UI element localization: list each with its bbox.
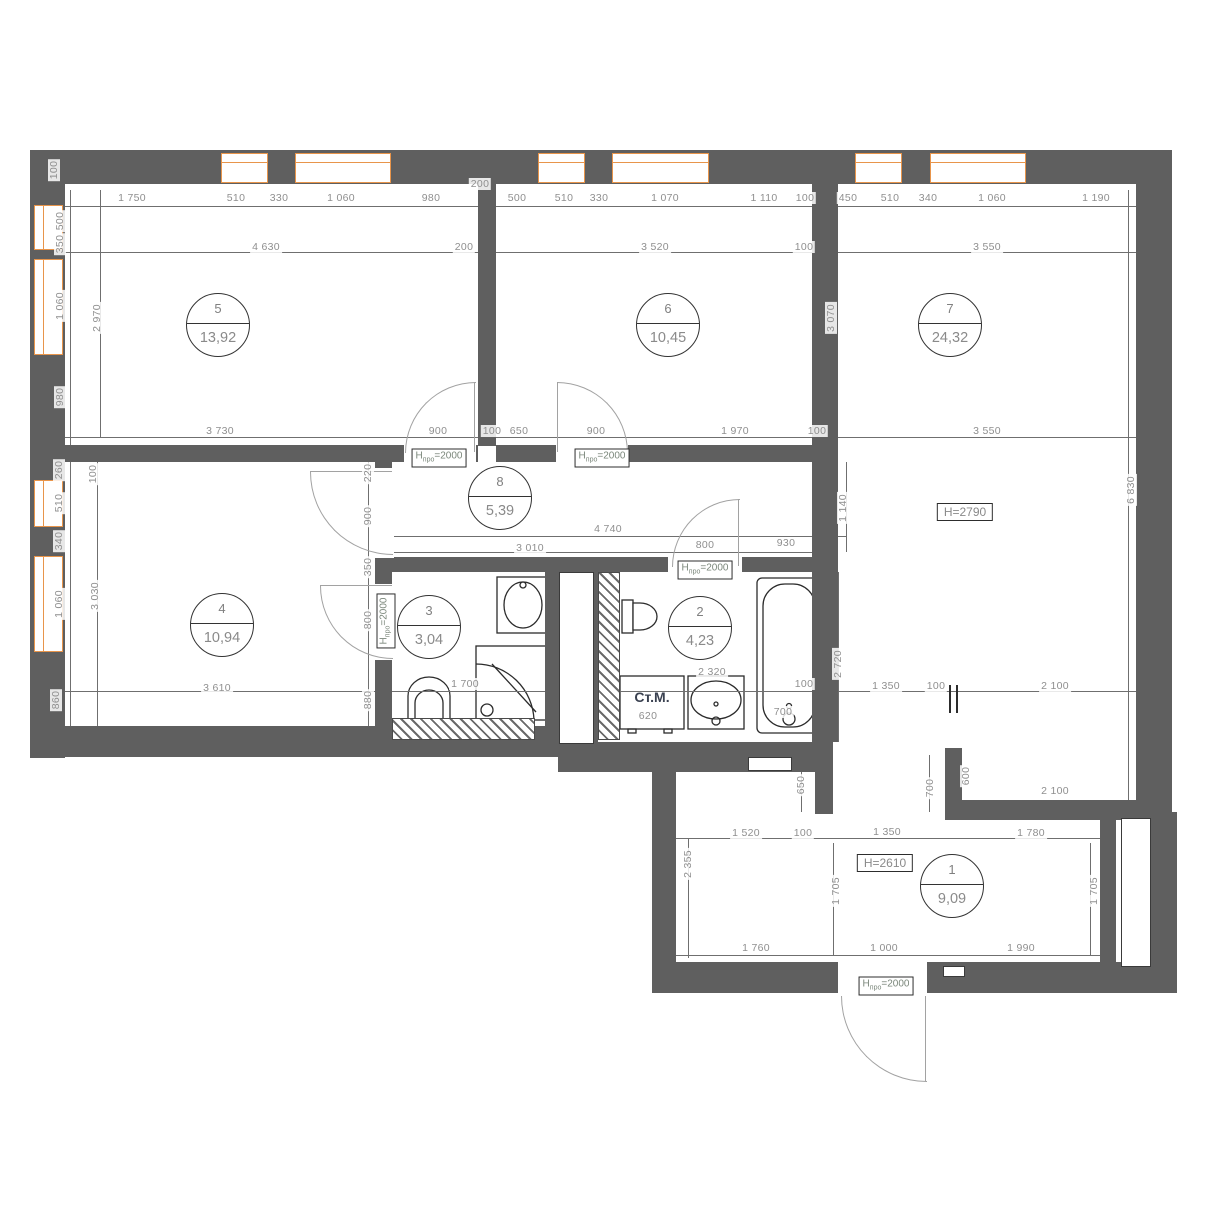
dimension-label: 450 xyxy=(837,192,859,204)
dimension-label: 3 610 xyxy=(201,682,233,694)
door-leaf xyxy=(738,499,739,566)
door-leaf xyxy=(310,471,392,472)
bathroom3-toilet xyxy=(408,677,450,722)
room-tag: 610,45 xyxy=(636,293,700,357)
dimension-label: 900 xyxy=(585,425,607,437)
door-height-box: Hпро=2000 xyxy=(575,449,630,468)
wall xyxy=(815,758,833,814)
dimension-label: 1 060 xyxy=(325,192,357,204)
dimension-label: 1 705 xyxy=(830,875,842,907)
dimension-label: 510 xyxy=(879,192,901,204)
dimension-label: 1 760 xyxy=(740,942,772,954)
wall xyxy=(545,557,559,742)
dimension-line xyxy=(392,552,838,553)
dimension-label: 1 060 xyxy=(53,588,65,620)
wall xyxy=(478,184,496,446)
door-leaf xyxy=(474,382,475,452)
dimension-label: 500 xyxy=(506,192,528,204)
room-tag: 724,32 xyxy=(918,293,982,357)
dimension-label: 1 190 xyxy=(1080,192,1112,204)
floor-plan: Ст.М. 1 7505103301 0609802005005103301 0… xyxy=(0,0,1214,1214)
dimension-label: 100 xyxy=(48,159,60,181)
room-number: 7 xyxy=(919,294,981,324)
room-area: 4,23 xyxy=(669,627,731,655)
room-area: 10,94 xyxy=(191,624,253,652)
wall xyxy=(392,557,838,572)
dimension-label: 100 xyxy=(792,827,814,839)
dimension-label: 260 xyxy=(53,459,65,481)
ceiling-height-box: H=2610 xyxy=(857,854,913,872)
room-area: 5,39 xyxy=(469,497,531,525)
dimension-label: 880 xyxy=(362,689,374,711)
dimension-label: 330 xyxy=(588,192,610,204)
dimension-label: 500 xyxy=(54,210,66,232)
room-area: 10,45 xyxy=(637,324,699,352)
dimension-label: 800 xyxy=(694,539,716,551)
dimension-label: 620 xyxy=(637,710,659,722)
dimension-label: 3 010 xyxy=(514,542,546,554)
dimension-label: 2 970 xyxy=(91,302,103,334)
dimension-label: 220 xyxy=(362,462,374,484)
dimension-label: 350 xyxy=(54,233,66,255)
dimension-label: 330 xyxy=(268,192,290,204)
shaft-niche-box xyxy=(1121,818,1151,967)
door-height-box: Hпро=2000 xyxy=(859,977,914,996)
door-leaf xyxy=(925,996,926,1081)
room-tag: 410,94 xyxy=(190,593,254,657)
hatched-partition xyxy=(392,718,535,740)
room-tag: 33,04 xyxy=(397,595,461,659)
dimension-label: 100 xyxy=(794,192,816,204)
door-height-box: Hпро=2000 xyxy=(678,561,733,580)
dimension-label: 2 100 xyxy=(1039,680,1071,692)
dimension-label: 100 xyxy=(793,678,815,690)
dimension-label: 1 970 xyxy=(719,425,751,437)
dimension-label: 1 060 xyxy=(976,192,1008,204)
dimension-line xyxy=(65,206,1136,207)
dimension-label: 2 320 xyxy=(696,666,728,678)
dimension-label: 1 060 xyxy=(54,290,66,322)
break-mark xyxy=(956,685,958,713)
room-number: 3 xyxy=(398,596,460,626)
dimension-label: 200 xyxy=(469,178,491,190)
dimension-label: 650 xyxy=(795,774,807,796)
window xyxy=(930,153,1026,183)
room-number: 8 xyxy=(469,467,531,497)
room-number: 6 xyxy=(637,294,699,324)
dimension-label: 860 xyxy=(50,689,62,711)
room-area: 3,04 xyxy=(398,626,460,654)
dimension-label: 510 xyxy=(225,192,247,204)
dimension-label: 700 xyxy=(772,706,794,718)
dimension-label: 100 xyxy=(481,425,503,437)
dimension-label: 980 xyxy=(420,192,442,204)
window xyxy=(295,153,391,183)
dimension-label: 6 830 xyxy=(1125,474,1137,506)
dimension-label: 340 xyxy=(917,192,939,204)
dimension-label: 100 xyxy=(806,425,828,437)
wall xyxy=(812,460,838,742)
dimension-label: 1 000 xyxy=(868,942,900,954)
bathroom3-sink xyxy=(497,577,549,633)
room-number: 1 xyxy=(921,855,983,885)
window xyxy=(221,153,268,183)
dimension-label: 1 110 xyxy=(749,192,780,204)
dimension-label: 1 705 xyxy=(1088,875,1100,907)
dimension-label: 900 xyxy=(362,505,374,527)
dimension-label: 100 xyxy=(793,241,815,253)
dimension-label: 1 350 xyxy=(870,680,902,692)
shaft-niche-box xyxy=(748,757,792,771)
wall xyxy=(1136,150,1172,812)
window xyxy=(612,153,709,183)
room-area: 24,32 xyxy=(919,324,981,352)
dimension-label: 1 350 xyxy=(871,826,903,838)
dimension-label: 100 xyxy=(87,463,99,485)
dimension-label: 800 xyxy=(362,609,374,631)
dimension-label: 930 xyxy=(775,537,797,549)
dimension-label: 200 xyxy=(453,241,475,253)
room-number: 5 xyxy=(187,294,249,324)
dimension-label: 3 030 xyxy=(89,580,101,612)
room-tag: 24,23 xyxy=(668,596,732,660)
wall xyxy=(945,800,1172,820)
room-tag: 513,92 xyxy=(186,293,250,357)
hatched-partition xyxy=(598,572,620,740)
dimension-label: 1 140 xyxy=(837,492,849,524)
window xyxy=(538,153,585,183)
bathroom2-sink xyxy=(688,676,744,729)
window xyxy=(855,153,902,183)
dimension-label: 1 750 xyxy=(116,192,148,204)
wall xyxy=(1100,818,1116,965)
dimension-label: 1 780 xyxy=(1015,827,1047,839)
room-tag: 85,39 xyxy=(468,466,532,530)
dimension-line xyxy=(676,955,1100,956)
door-leaf xyxy=(320,585,392,586)
door-height-box: Hпро=2000 xyxy=(412,449,467,468)
dimension-label: 900 xyxy=(427,425,449,437)
dimension-label: 350 xyxy=(362,556,374,578)
dimension-label: 4 740 xyxy=(592,523,624,535)
dimension-label: 4 630 xyxy=(250,241,282,253)
wall xyxy=(1149,812,1177,992)
dimension-label: 980 xyxy=(54,386,66,408)
dimension-label: 100 xyxy=(925,680,947,692)
room-area: 13,92 xyxy=(187,324,249,352)
break-mark xyxy=(949,685,951,713)
dimension-label: 3 550 xyxy=(971,425,1003,437)
dimension-label: 700 xyxy=(924,777,936,799)
dimension-label: 3 520 xyxy=(639,241,671,253)
dimension-label: 600 xyxy=(960,765,972,787)
dimension-label: 340 xyxy=(53,530,65,552)
dimension-label: 1 700 xyxy=(449,678,481,690)
dimension-label: 3 070 xyxy=(825,302,837,334)
dimension-label: 2 355 xyxy=(682,848,694,880)
wall xyxy=(496,445,812,462)
dimension-label: 510 xyxy=(53,492,65,514)
dimension-label: 510 xyxy=(553,192,575,204)
wall xyxy=(652,758,676,993)
door-height-box: Hпро=2000 xyxy=(377,594,396,649)
ceiling-height-box: H=2790 xyxy=(937,503,993,521)
dimension-label: 1 990 xyxy=(1005,942,1037,954)
room-number: 2 xyxy=(669,597,731,627)
room-tag: 19,09 xyxy=(920,854,984,918)
room-number: 4 xyxy=(191,594,253,624)
dimension-label: 2 100 xyxy=(1039,785,1071,797)
dimension-label: 3 550 xyxy=(971,241,1003,253)
room-area: 9,09 xyxy=(921,885,983,913)
shaft-niche-box xyxy=(559,572,594,744)
shaft-niche-box xyxy=(943,966,965,977)
dimension-label: 1 520 xyxy=(730,827,762,839)
dimension-label: 3 730 xyxy=(204,425,236,437)
shower-tray xyxy=(476,646,546,720)
dimension-label: 1 070 xyxy=(649,192,681,204)
dimension-label: 2 720 xyxy=(832,648,844,680)
door-leaf xyxy=(557,382,558,452)
dimension-label: 650 xyxy=(508,425,530,437)
bathroom2-toilet xyxy=(622,600,657,633)
